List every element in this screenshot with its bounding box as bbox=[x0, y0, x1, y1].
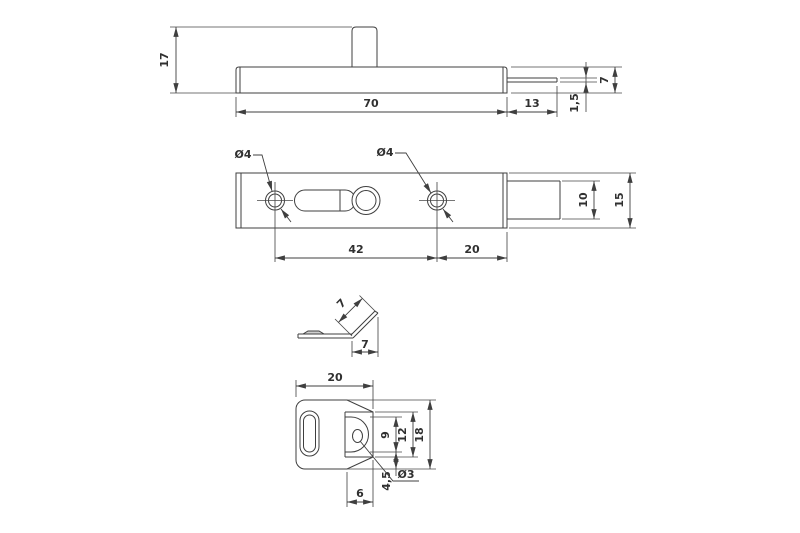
dim-bolt-width: 10 bbox=[577, 192, 590, 208]
dim-tongue-offset: 4,5 bbox=[380, 471, 393, 491]
view-bolt-side: 17 70 13 1,5 7 bbox=[158, 27, 622, 117]
dim-plate-height: 18 bbox=[413, 427, 426, 442]
keeper-hole bbox=[353, 430, 363, 443]
dim-tongue-height: 9 bbox=[379, 431, 392, 439]
bolt-rod-side bbox=[507, 78, 557, 82]
dim-hole-left-dia: Ø4 bbox=[234, 148, 251, 161]
bolt-body-side bbox=[236, 67, 507, 93]
dim-opening-height: 12 bbox=[396, 427, 409, 442]
dim-hole-dia: Ø3 bbox=[397, 468, 414, 481]
bolt-knob-side bbox=[352, 27, 377, 67]
keeper-flange-side bbox=[351, 311, 378, 338]
dim-hole-to-edge: 20 bbox=[464, 243, 480, 256]
bolt-slot bbox=[295, 190, 356, 211]
dim-flange-slant: 7 bbox=[334, 296, 349, 311]
dim-body-length: 70 bbox=[363, 97, 379, 110]
drawing-canvas: 17 70 13 1,5 7 bbox=[0, 0, 800, 533]
dim-body-height: 7 bbox=[598, 76, 611, 84]
mounting-hole-left bbox=[257, 182, 293, 262]
dim-hole-spacing: 42 bbox=[348, 243, 363, 256]
view-keeper-side: 7 7 bbox=[298, 296, 378, 358]
dim-bolt-extension: 13 bbox=[524, 97, 539, 110]
keeper-plate-plan bbox=[296, 400, 373, 469]
dim-hole-right-dia: Ø4 bbox=[376, 146, 393, 159]
view-bolt-plan: Ø4 Ø4 42 20 10 15 bbox=[234, 146, 636, 262]
technical-drawing: 17 70 13 1,5 7 bbox=[0, 0, 800, 533]
dim-plate-width: 20 bbox=[327, 371, 343, 384]
dim-body-width: 15 bbox=[613, 192, 626, 207]
mounting-hole-right bbox=[419, 182, 455, 262]
dim-fold-offset: 6 bbox=[356, 487, 364, 500]
view-keeper-plan: 20 18 12 9 4,5 6 Ø3 bbox=[296, 371, 436, 507]
bolt-rod-plan bbox=[507, 181, 560, 219]
dim-total-height: 17 bbox=[158, 52, 171, 67]
dim-rod-thickness: 1,5 bbox=[568, 93, 581, 113]
keeper-slot-emboss bbox=[303, 331, 324, 334]
keeper-plate-side bbox=[298, 334, 353, 338]
dim-flange-horizontal: 7 bbox=[361, 338, 369, 351]
keeper-screw-slot bbox=[300, 411, 319, 456]
